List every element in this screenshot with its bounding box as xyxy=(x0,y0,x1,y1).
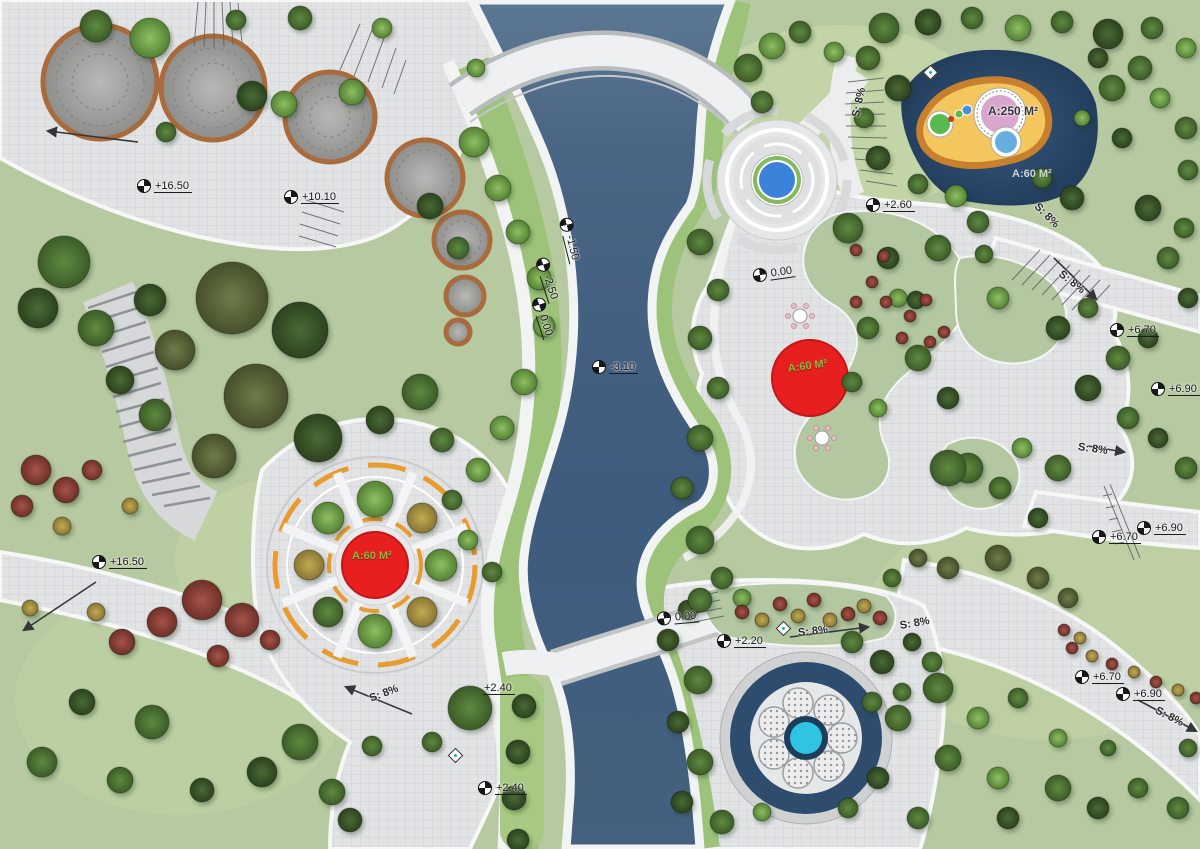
site-plan: +16.50+10.10-1.50-2.500.00-3.10+2.600.00… xyxy=(0,0,1200,849)
pool-pink-basin xyxy=(981,95,1019,133)
red-feature-circle-east xyxy=(772,340,848,416)
red-feature-circle-west xyxy=(342,532,408,598)
fountain-pool xyxy=(759,162,795,198)
south-fountain xyxy=(720,652,892,824)
site-plan-drawing xyxy=(0,0,1200,849)
south-bridge-link xyxy=(504,662,562,666)
pool-green-basin xyxy=(930,114,950,134)
fountain-center xyxy=(790,722,822,754)
pool-blue-basin xyxy=(995,131,1017,153)
